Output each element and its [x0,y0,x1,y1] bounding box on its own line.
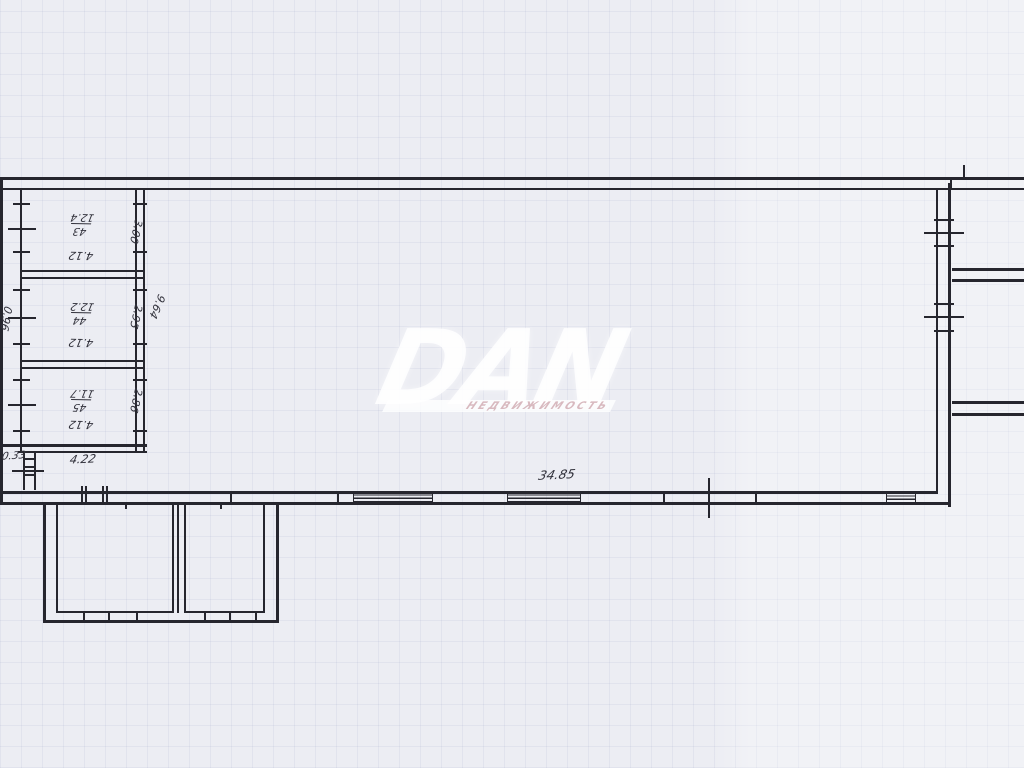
porch-wall [276,502,279,622]
room-divider [20,367,145,369]
door-jamb-tick [133,379,147,381]
opening-jamb-tick [934,245,954,247]
right-room-wall [952,268,1024,271]
opening-center-tick [924,316,964,318]
wall-segment-divider [230,491,232,503]
wall-segment-divider [755,491,757,503]
bottom-wall-outer [0,491,938,494]
porch-wall [43,502,46,622]
porch-wall [177,503,179,613]
porch-wall [184,611,265,613]
window-center-tick [8,228,36,230]
window-jamb-tick [13,379,30,381]
bottom-wall-inner [0,502,950,505]
porch-post-tick [108,611,110,622]
porch-wall [172,503,174,613]
room-area: 12.4 [69,211,95,224]
porch-post-tick [255,611,257,622]
window-jamb-tick [13,203,30,205]
window-center-tick [8,404,36,406]
dim-porch-width: 4.22 [68,451,97,466]
top-wall-tick [963,165,965,178]
wall-segment-divider [337,491,339,503]
porch-wall [184,503,186,613]
block-bottom-wall-outer [0,444,147,447]
window [353,491,433,502]
room-width-dim: 4.12 [65,418,98,431]
stair-ladder-tick [12,470,44,472]
door-jamb-tick [81,486,83,503]
opening-center-tick [924,232,964,234]
dimension-tick [708,478,710,518]
room-divider [20,270,145,272]
opening-jamb-tick [934,330,954,332]
stair-ladder-rung [23,466,36,468]
right-room-wall [952,401,1024,404]
scan-light-band [712,0,1024,768]
room-label: 45 11.7 [61,387,100,414]
floorplan-canvas: DAN НЕДВИЖИМОСТЬ [0,0,1024,768]
door-jamb-tick [133,430,147,432]
door-jamb-tick [106,486,108,503]
room-area: 11.7 [69,387,95,400]
room-area: 12.2 [69,300,95,313]
right-room-wall [952,413,1024,416]
room-number: 44 [69,312,91,326]
stair-ladder-rung [23,474,36,476]
porch-top-tick [220,502,222,509]
door-jamb-tick [85,486,87,503]
porch-post-tick [83,611,85,622]
porch-post-tick [136,611,138,622]
window-jamb-tick [13,289,30,291]
door-jamb-tick [133,251,147,253]
right-room-wall [952,279,1024,282]
watermark-subtitle: НЕДВИЖИМОСТЬ [464,400,612,412]
porch-wall [263,503,265,613]
room-number: 43 [69,223,91,237]
dim-block-depth: 9.64 [145,288,170,326]
porch-post-tick [204,611,206,622]
window-jamb-tick [13,343,30,345]
door-jamb-tick [133,343,147,345]
room-label: 44 12.2 [61,300,100,327]
porch-top-tick [125,502,127,509]
window [507,491,581,502]
porch-wall [56,503,58,613]
top-wall-outer [0,177,1024,180]
room-width-dim: 4.12 [65,249,98,262]
window [886,492,916,502]
dim-left-offset: 0.33 [1,449,27,463]
opening-jamb-tick [934,303,954,305]
watermark-band: НЕДВИЖИМОСТЬ [382,400,616,412]
door-jamb-tick [102,486,104,503]
room-number: 45 [69,399,91,413]
room-divider [20,360,145,362]
top-wall-inner [0,188,1024,190]
porch-wall [56,611,174,613]
dim-overall-width: 34.85 [537,466,577,483]
porch-post-tick [229,611,231,622]
door-jamb-tick [133,203,147,205]
window-jamb-tick [13,251,30,253]
door-jamb-tick [133,289,147,291]
porch-wall-outer [43,620,279,623]
room-width-dim: 4.12 [65,336,98,349]
wall-segment-divider [663,491,665,503]
opening-jamb-tick [934,219,954,221]
room-divider [20,277,145,279]
room-label: 43 12.4 [61,211,100,238]
window-jamb-tick [13,430,30,432]
